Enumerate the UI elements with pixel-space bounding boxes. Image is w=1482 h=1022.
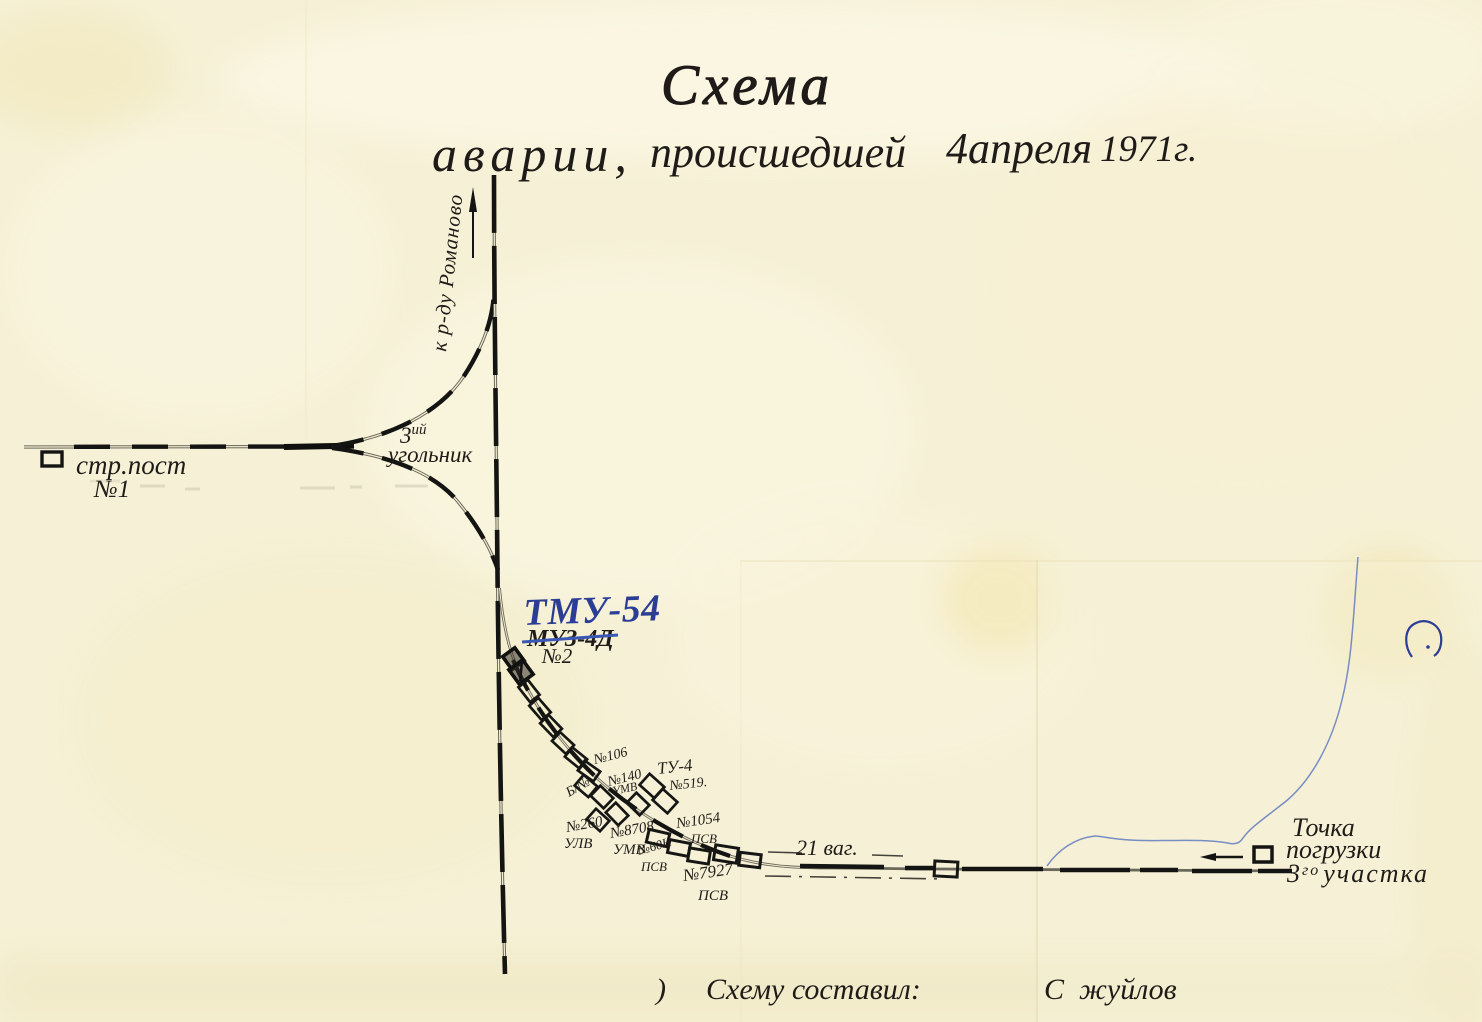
svg-text:жуйлов: жуйлов	[1079, 973, 1177, 1006]
svg-text:С: С	[1044, 973, 1065, 1006]
svg-text:ПСВ: ПСВ	[697, 888, 728, 904]
svg-text:происшедшей: происшедшей	[650, 128, 906, 177]
svg-text:21 ваг.: 21 ваг.	[796, 835, 858, 860]
svg-text:Схема: Схема	[661, 54, 833, 117]
svg-text:ПСВ: ПСВ	[640, 859, 667, 874]
svg-text:угольник: угольник	[386, 442, 473, 467]
svg-text:1971г.: 1971г.	[1100, 129, 1197, 170]
svg-text:стр.пост: стр.пост	[76, 450, 186, 480]
svg-text:№2: №2	[541, 644, 573, 668]
svg-text:): )	[654, 973, 666, 1006]
svg-text:4апреля: 4апреля	[946, 124, 1092, 173]
svg-text:ТУ-4: ТУ-4	[656, 755, 693, 778]
svg-text:аварии,: аварии,	[432, 126, 633, 182]
svg-text:УЛВ: УЛВ	[564, 836, 592, 852]
svg-text:ПСВ: ПСВ	[690, 831, 717, 846]
svg-text:Схему составил:: Схему составил:	[706, 973, 921, 1006]
